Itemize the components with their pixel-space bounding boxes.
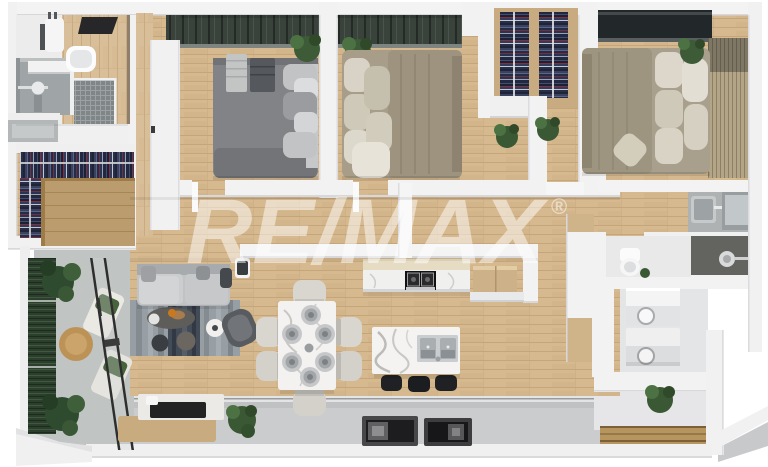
svg-text:RE/MAX: RE/MAX	[186, 181, 548, 283]
svg-text:®: ®	[551, 194, 567, 219]
